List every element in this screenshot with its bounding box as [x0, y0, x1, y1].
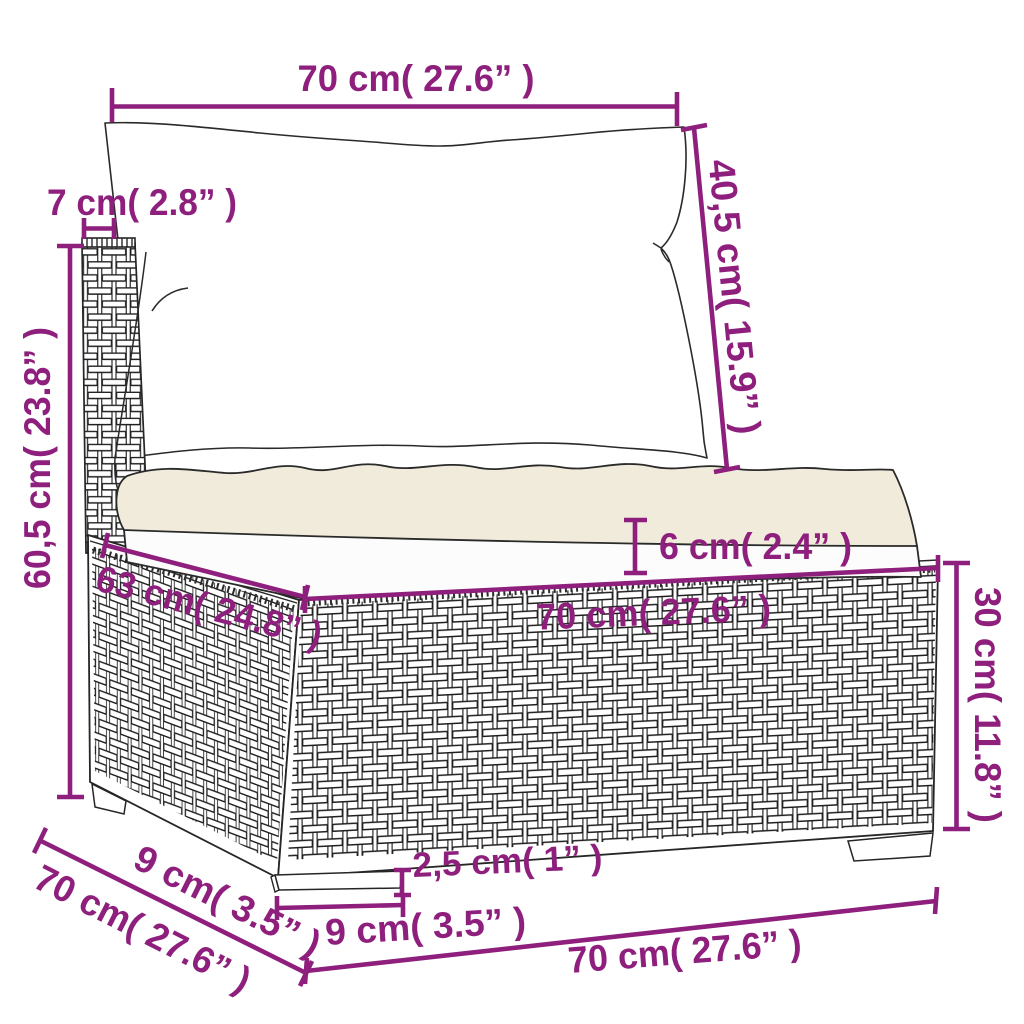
svg-text:7 cm( 2.8” ): 7 cm( 2.8” )	[47, 182, 237, 223]
svg-text:60,5 cm( 23.8” ): 60,5 cm( 23.8” )	[17, 327, 58, 589]
svg-text:70 cm( 27.6” ): 70 cm( 27.6” )	[298, 58, 535, 99]
svg-text:30 cm( 11.8” ): 30 cm( 11.8” )	[967, 587, 1008, 823]
svg-text:6 cm( 2.4” ): 6 cm( 2.4” )	[659, 526, 852, 567]
svg-text:2,5 cm( 1” ): 2,5 cm( 1” )	[412, 838, 604, 885]
